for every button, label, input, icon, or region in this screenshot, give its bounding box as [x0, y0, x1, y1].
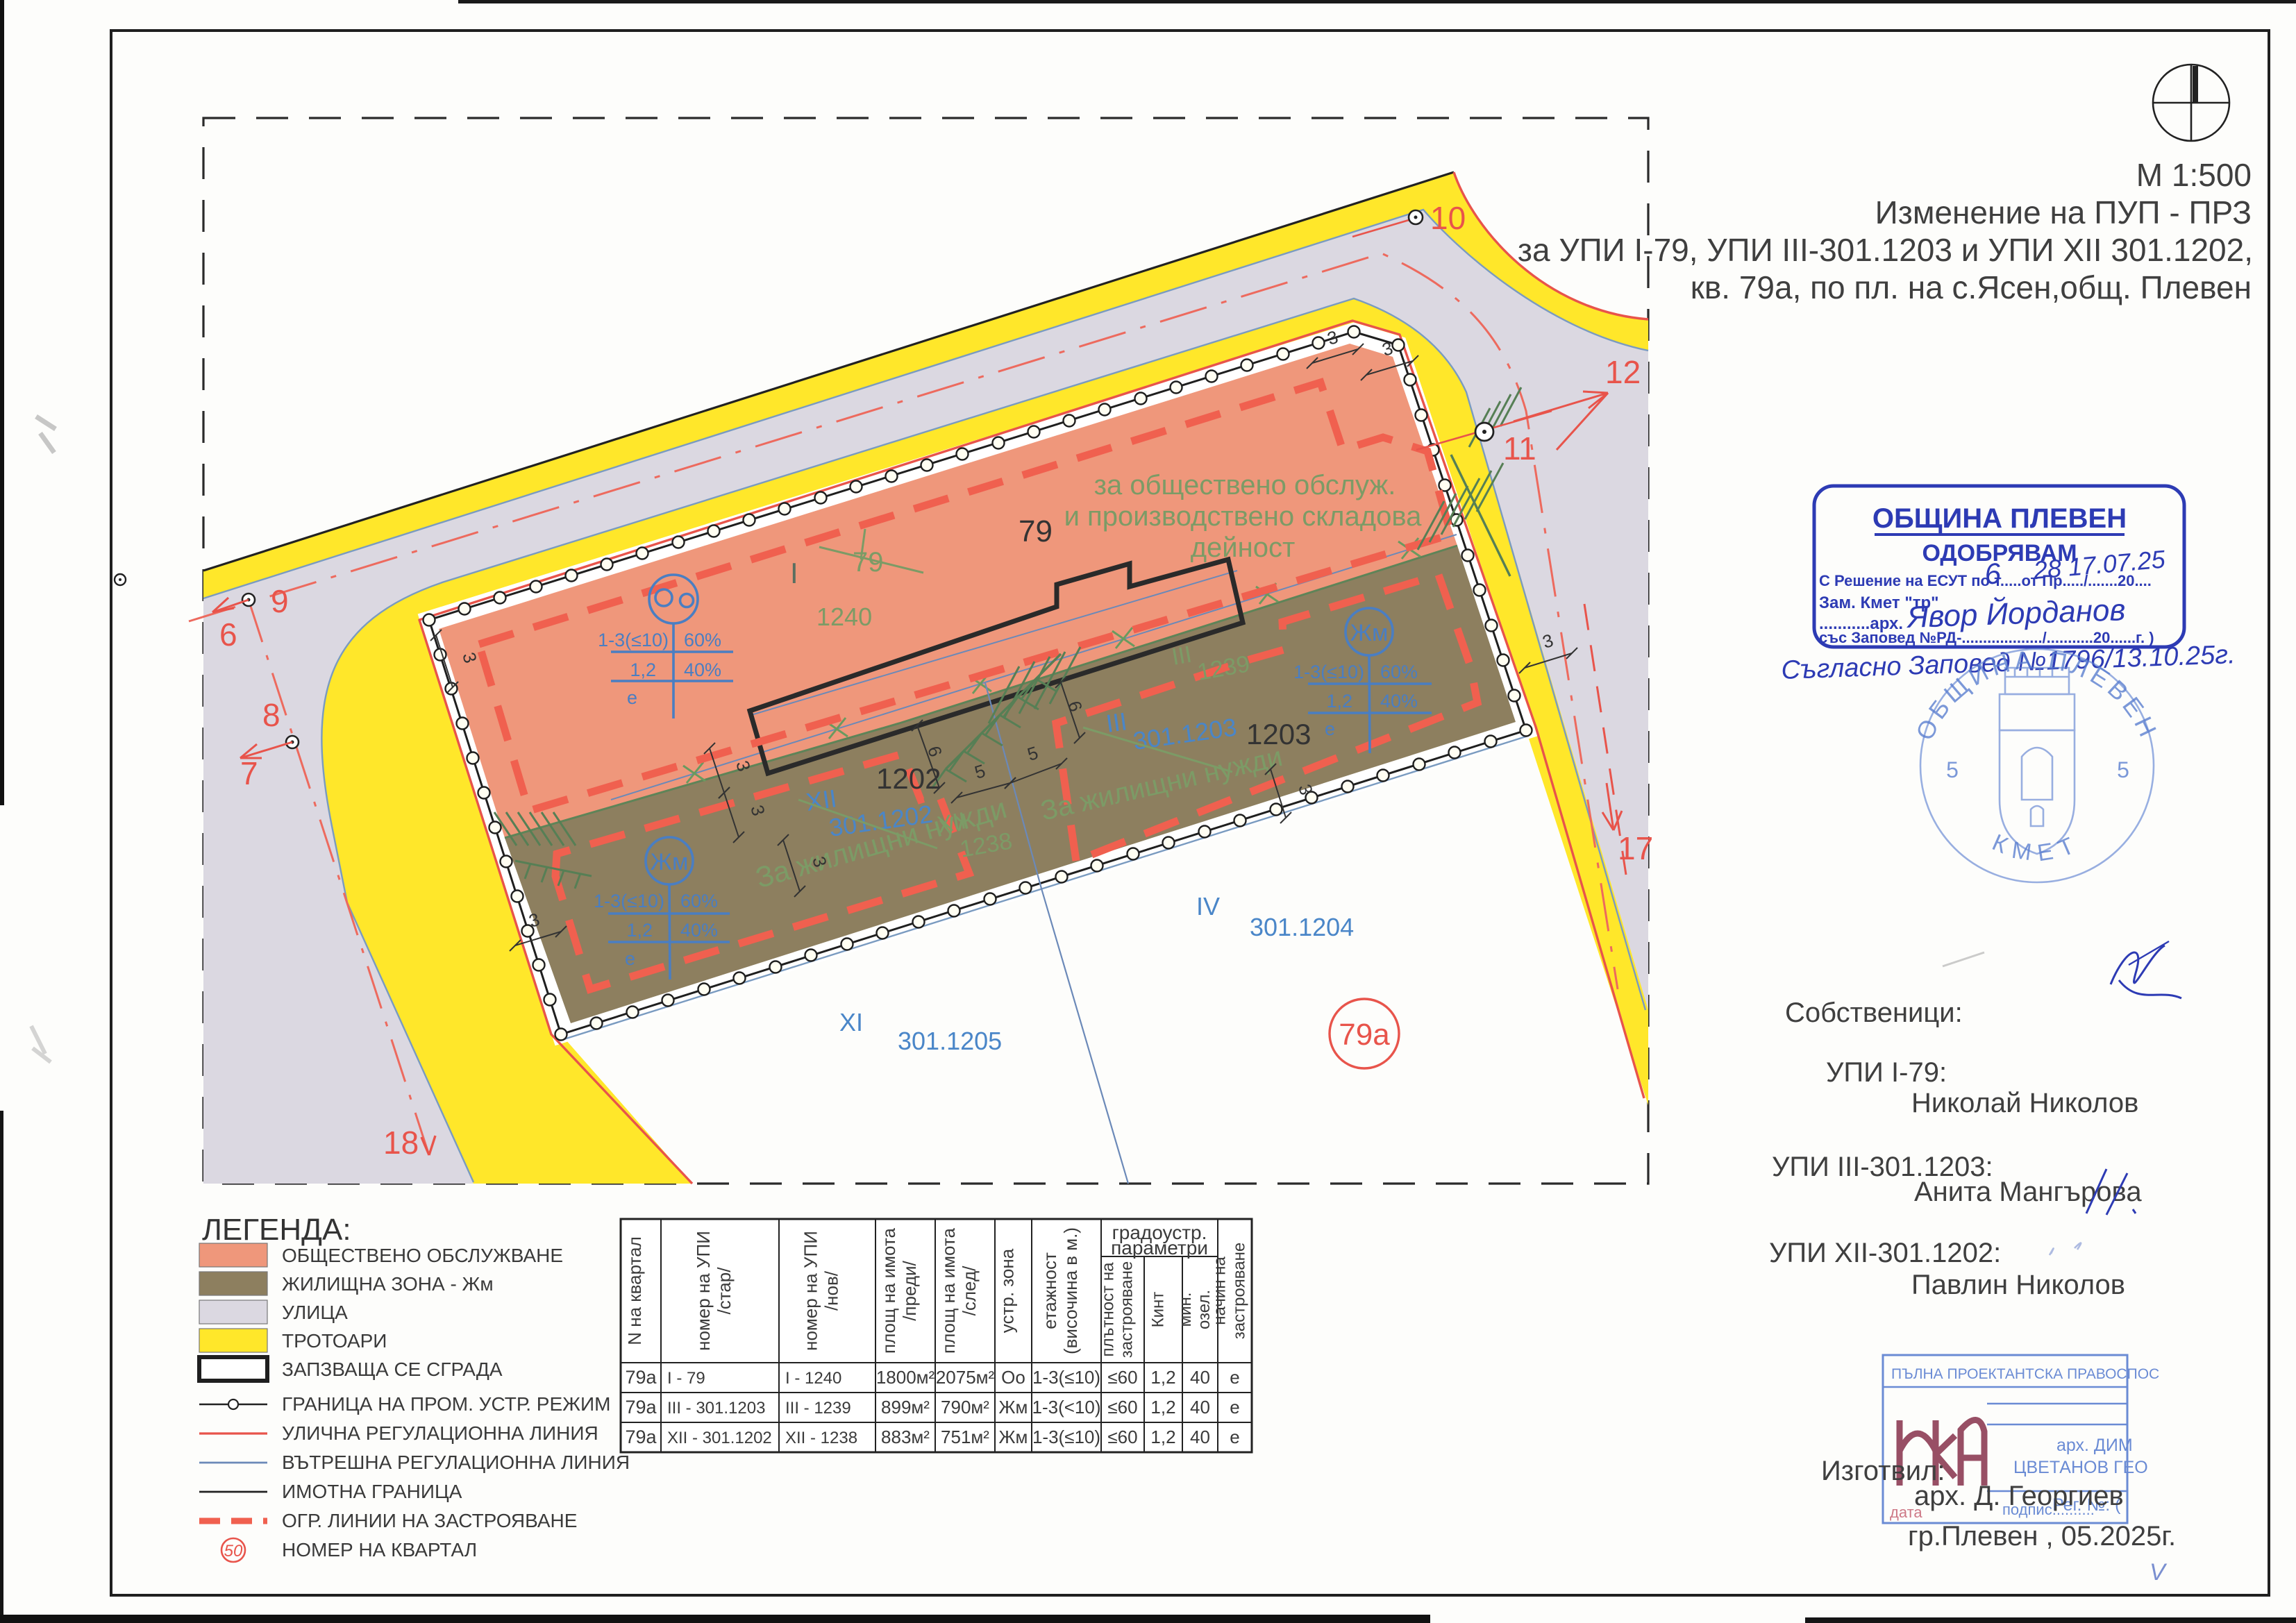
svg-text:Жм: Жм	[1350, 620, 1389, 646]
svg-text:/стар/: /стар/	[714, 1267, 735, 1315]
svg-text:III - 1239: III - 1239	[785, 1399, 851, 1418]
svg-text:III - 301.1203: III - 301.1203	[667, 1399, 765, 1418]
svg-text:≤60: ≤60	[1107, 1427, 1137, 1447]
svg-text:79а: 79а	[625, 1367, 657, 1388]
svg-text:12: 12	[1605, 354, 1641, 390]
svg-text:/преди/: /преди/	[899, 1260, 920, 1320]
svg-text:номер на УПИ: номер на УПИ	[801, 1231, 821, 1351]
svg-text:1-3(≤10): 1-3(≤10)	[1032, 1427, 1100, 1447]
svg-text:за обществено обслуж.: за обществено обслуж.	[1094, 470, 1396, 501]
svg-text:40: 40	[1190, 1367, 1210, 1388]
svg-text:1-3(<10): 1-3(<10)	[1032, 1397, 1101, 1418]
svg-text:5: 5	[2117, 757, 2129, 782]
svg-text:1,2: 1,2	[1150, 1427, 1175, 1447]
svg-text:дейност: дейност	[1191, 532, 1296, 563]
svg-text:М 1:500: М 1:500	[2136, 157, 2252, 193]
svg-text:11: 11	[1503, 430, 1536, 466]
svg-text:е: е	[1325, 718, 1335, 739]
svg-text:ВЪТРЕШНА РЕГУЛАЦИОННА ЛИНИЯ: ВЪТРЕШНА РЕГУЛАЦИОННА ЛИНИЯ	[282, 1452, 630, 1473]
svg-text:начин на: начин на	[1211, 1256, 1230, 1325]
svg-text:V: V	[2150, 1559, 2168, 1586]
svg-text:XII - 1238: XII - 1238	[785, 1429, 857, 1447]
svg-text:УПИ XII-301.1202:: УПИ XII-301.1202:	[1769, 1238, 2001, 1268]
svg-text:60%: 60%	[1380, 662, 1418, 682]
svg-text:50: 50	[224, 1542, 243, 1561]
svg-text:площ на имота: площ на имота	[878, 1227, 899, 1354]
svg-text:60%: 60%	[680, 891, 718, 911]
svg-text:/нов/: /нов/	[821, 1270, 842, 1311]
svg-text:устр. зона: устр. зона	[997, 1248, 1018, 1333]
svg-text:1800м²: 1800м²	[876, 1367, 935, 1388]
svg-text:751м²: 751м²	[941, 1427, 989, 1447]
svg-text:етажност: етажност	[1039, 1252, 1060, 1329]
svg-text:Жм: Жм	[999, 1397, 1028, 1418]
svg-text:6: 6	[219, 616, 237, 653]
svg-text:790м²: 790м²	[941, 1397, 989, 1418]
svg-text:Кинт: Кинт	[1149, 1292, 1168, 1328]
svg-text:40: 40	[1190, 1427, 1210, 1447]
svg-text:899м²: 899м²	[881, 1397, 930, 1418]
svg-text:301.1204: 301.1204	[1250, 913, 1354, 941]
svg-text:2075м²: 2075м²	[936, 1367, 995, 1388]
svg-text:5: 5	[1946, 757, 1959, 782]
svg-text:I - 79: I - 79	[667, 1369, 705, 1388]
svg-text:XII - 301.1202: XII - 301.1202	[667, 1429, 772, 1447]
svg-text:е: е	[1230, 1367, 1239, 1388]
svg-text:≤60: ≤60	[1107, 1397, 1137, 1418]
svg-text:1,2: 1,2	[630, 659, 656, 680]
svg-text:1-3(≤10): 1-3(≤10)	[594, 891, 664, 911]
svg-text:40%: 40%	[1380, 691, 1418, 712]
svg-text:Жм: Жм	[999, 1427, 1028, 1447]
svg-text:III: III	[1104, 707, 1128, 738]
svg-text:е: е	[625, 948, 635, 969]
svg-text:Жм: Жм	[651, 849, 689, 875]
svg-text:301.1205: 301.1205	[898, 1027, 1002, 1055]
svg-text:(височина в м.): (височина в м.)	[1060, 1227, 1081, 1354]
svg-text:40%: 40%	[684, 659, 721, 680]
svg-text:1,2: 1,2	[1326, 691, 1352, 712]
svg-text:1,2: 1,2	[1150, 1367, 1175, 1388]
svg-text:и производствено складова: и производствено складова	[1064, 501, 1423, 532]
svg-text:XI: XI	[839, 1008, 863, 1036]
svg-text:УЛИЦА: УЛИЦА	[282, 1302, 348, 1323]
svg-text:I - 1240: I - 1240	[785, 1369, 841, 1388]
svg-text:17: 17	[1618, 830, 1653, 866]
svg-text:Изменение на ПУП - ПРЗ: Изменение на ПУП - ПРЗ	[1875, 194, 2252, 230]
svg-text:79а: 79а	[625, 1397, 657, 1418]
svg-text:ОГР. ЛИНИИ НА ЗАСТРОЯВАНЕ: ОГР. ЛИНИИ НА ЗАСТРОЯВАНЕ	[282, 1510, 577, 1531]
svg-text:40: 40	[1190, 1397, 1210, 1418]
svg-text:40%: 40%	[680, 920, 718, 941]
svg-text:9: 9	[271, 583, 289, 619]
svg-text:ИМОТНА ГРАНИЦА: ИМОТНА ГРАНИЦА	[282, 1481, 462, 1502]
svg-text:застрояване: застрояване	[1230, 1243, 1249, 1339]
svg-text:1,2: 1,2	[626, 920, 653, 941]
svg-text:1,2: 1,2	[1150, 1397, 1175, 1418]
svg-text:10: 10	[1430, 200, 1466, 236]
svg-text:ОБЩИНА ПЛЕВЕН: ОБЩИНА ПЛЕВЕН	[1872, 503, 2127, 534]
svg-text:е: е	[1230, 1427, 1239, 1447]
svg-text:плътност на: плътност на	[1099, 1262, 1118, 1357]
svg-text:УЛИЧНА РЕГУЛАЦИОННА ЛИНИЯ: УЛИЧНА РЕГУЛАЦИОННА ЛИНИЯ	[282, 1422, 598, 1444]
svg-text:Собственици:: Собственици:	[1785, 998, 1963, 1028]
svg-text:площ на имота: площ на имота	[938, 1227, 959, 1354]
svg-text:ЖИЛИЩНА ЗОНА - Жм: ЖИЛИЩНА ЗОНА - Жм	[282, 1273, 494, 1295]
svg-text:Оо: Оо	[1001, 1367, 1025, 1388]
svg-text:60%: 60%	[684, 630, 721, 650]
svg-text:УПИ I-79:: УПИ I-79:	[1826, 1057, 1947, 1088]
svg-text:параметри: параметри	[1111, 1237, 1208, 1259]
svg-text:1-3(≤10): 1-3(≤10)	[1032, 1367, 1100, 1388]
svg-text:I: I	[790, 557, 798, 589]
svg-text:ОБЩЕСТВЕНО ОБСЛУЖВАНЕ: ОБЩЕСТВЕНО ОБСЛУЖВАНЕ	[282, 1245, 563, 1266]
svg-text:е: е	[627, 687, 637, 708]
svg-text:/след/: /след/	[959, 1265, 980, 1315]
svg-text:79: 79	[1019, 514, 1053, 548]
svg-text:ЗАПЗВАЩА СЕ СГРАДА: ЗАПЗВАЩА СЕ СГРАДА	[282, 1359, 503, 1380]
svg-text:НОМЕР НА КВАРТАЛ: НОМЕР НА КВАРТАЛ	[282, 1539, 477, 1561]
svg-text:Анита Мангърова: Анита Мангърова	[1914, 1177, 2142, 1207]
svg-text:883м²: 883м²	[881, 1427, 930, 1447]
svg-text:ЛЕГЕНДА:: ЛЕГЕНДА:	[202, 1213, 351, 1247]
svg-text:ЦВЕТАНОВ ГЕО: ЦВЕТАНОВ ГЕО	[2013, 1458, 2148, 1477]
svg-text:Николай Николов: Николай Николов	[1911, 1088, 2138, 1118]
svg-text:79а: 79а	[1339, 1018, 1390, 1052]
svg-text:N на квартал: N на квартал	[624, 1236, 645, 1345]
svg-text:IV: IV	[1196, 892, 1220, 920]
svg-text:8: 8	[262, 697, 280, 733]
svg-text:79а: 79а	[625, 1427, 657, 1447]
svg-text:18: 18	[383, 1125, 419, 1161]
svg-text:номер на УПИ: номер на УПИ	[693, 1231, 714, 1351]
svg-text:мин.: мин.	[1176, 1293, 1195, 1327]
svg-text:кв. 79а, по пл. на с.Ясен,общ.: кв. 79а, по пл. на с.Ясен,общ. Плевен	[1691, 269, 2252, 305]
svg-text:≤60: ≤60	[1107, 1367, 1137, 1388]
svg-text:застрояване: застрояване	[1118, 1261, 1137, 1358]
svg-text:1-3(≤10): 1-3(≤10)	[598, 630, 669, 650]
svg-text:арх. ДИМ: арх. ДИМ	[2056, 1436, 2133, 1455]
svg-text:1240: 1240	[816, 603, 872, 631]
svg-text:ПЪЛНА ПРОЕКТАНТСКА ПРАВОСПОС: ПЪЛНА ПРОЕКТАНТСКА ПРАВОСПОС	[1891, 1366, 2159, 1382]
svg-text:ГРАНИЦА НА ПРОМ. УСТР. РЕЖИМ: ГРАНИЦА НА ПРОМ. УСТР. РЕЖИМ	[282, 1393, 610, 1415]
svg-text:за УПИ I-79, УПИ III-301.1203: за УПИ I-79, УПИ III-301.1203 и УПИ XII …	[1518, 232, 2253, 268]
svg-text:1-3(≤10): 1-3(≤10)	[1293, 662, 1364, 682]
svg-text:ТРОТОАРИ: ТРОТОАРИ	[282, 1330, 387, 1352]
svg-text:гр.Плевен , 05.2025г.: гр.Плевен , 05.2025г.	[1908, 1521, 2176, 1551]
svg-text:е: е	[1230, 1397, 1239, 1418]
svg-text:арх. Д. Георгиев: арх. Д. Георгиев	[1914, 1481, 2124, 1511]
svg-text:Павлин Николов: Павлин Николов	[1911, 1270, 2125, 1300]
svg-text:7: 7	[240, 755, 258, 791]
